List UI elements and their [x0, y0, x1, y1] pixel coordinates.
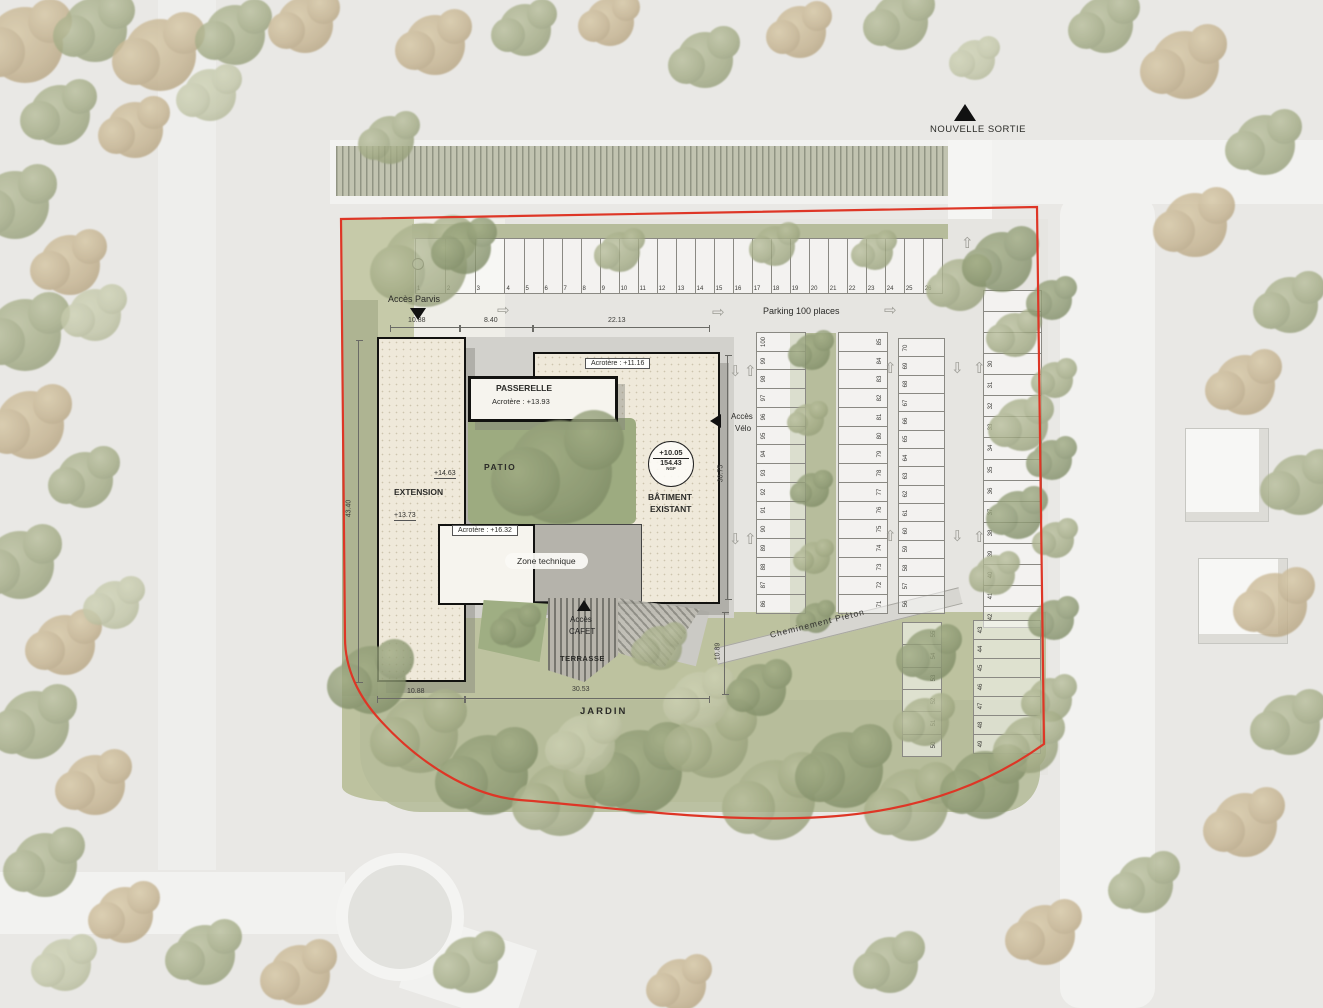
- level-value: +10.05: [649, 448, 693, 457]
- site-plan: 1234567891011121314151617181920212223242…: [0, 0, 1323, 1008]
- dim-bottom-1: [377, 698, 465, 699]
- label-extension: EXTENSION: [394, 487, 443, 497]
- dim-left: [358, 340, 359, 683]
- label-terrasse: TERRASSE: [560, 654, 605, 663]
- dim-top-3-label: 22.13: [608, 317, 626, 324]
- level-divider: [653, 458, 689, 459]
- label-acces-cafet-2: CAFET: [569, 627, 595, 636]
- label-passerelle-acrotere: Acrotère : +13.93: [492, 397, 550, 406]
- dim-top-3: [533, 327, 710, 328]
- label-passerelle: PASSERELLE: [496, 383, 552, 393]
- label-parking: Parking 100 places: [763, 306, 840, 316]
- parvis-arrow-icon: [410, 308, 426, 320]
- label-batiment-1: BÂTIMENT: [648, 492, 692, 502]
- dim-terrasse: [724, 612, 725, 695]
- dim-left-label: 43.40: [345, 500, 352, 518]
- tag-acrotere-existant: Acrotère : +11.16: [585, 358, 650, 369]
- label-level-1373: +13.73: [394, 512, 416, 521]
- label-zone-technique: Zone technique: [505, 553, 588, 569]
- dim-terrasse-label: 10.89: [714, 643, 721, 661]
- dim-bottom-1-label: 10.88: [407, 688, 425, 695]
- cafet-arrow-icon: [577, 600, 591, 611]
- label-batiment-2: EXISTANT: [650, 504, 691, 514]
- dim-top-2: [460, 327, 533, 328]
- label-acces-parvis: Accès Parvis: [388, 294, 440, 304]
- exit-arrow-icon: [954, 104, 976, 121]
- label-acces-cafet-1: Accès: [570, 615, 592, 624]
- dim-right: [727, 355, 728, 600]
- dim-top-2-label: 8.40: [484, 317, 498, 324]
- label-level-1463: +14.63: [434, 470, 456, 479]
- dim-bottom-2-label: 30.53: [572, 686, 590, 693]
- dim-bottom-2: [465, 698, 710, 699]
- velo-arrow-icon: [710, 414, 721, 428]
- level-circle: +10.05 154.43 NGF: [648, 441, 694, 487]
- label-jardin: JARDIN: [580, 706, 627, 717]
- label-acces-velo-2: Vélo: [735, 424, 751, 433]
- label-patio: PATIO: [484, 462, 516, 472]
- label-nouvelle-sortie: NOUVELLE SORTIE: [930, 124, 1026, 135]
- dim-right-label: 30.75: [717, 465, 724, 483]
- label-acces-velo-1: Accès: [731, 412, 753, 421]
- tag-acrotere-technique: Acrotère : +16.32: [452, 525, 518, 536]
- level-ngf-unit: NGF: [649, 466, 693, 471]
- dim-top-1: [390, 327, 460, 328]
